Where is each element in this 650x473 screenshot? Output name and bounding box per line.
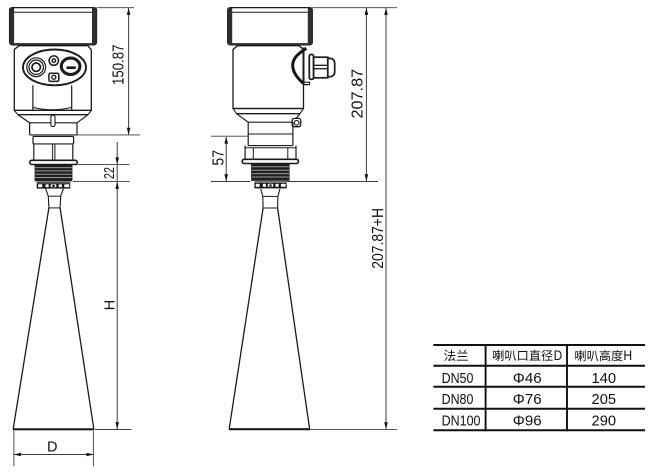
svg-text:207.87+H: 207.87+H (370, 208, 387, 269)
svg-text:150.87: 150.87 (111, 45, 128, 85)
svg-text:DN50: DN50 (442, 371, 474, 387)
svg-text:D: D (554, 348, 563, 364)
svg-text:290: 290 (592, 414, 617, 430)
svg-text:D: D (47, 439, 57, 455)
svg-text:Φ96: Φ96 (513, 414, 542, 430)
svg-text:H: H (103, 300, 119, 310)
svg-text:207.87: 207.87 (349, 69, 366, 119)
svg-text:DN100: DN100 (442, 414, 481, 430)
svg-text:22: 22 (102, 167, 118, 179)
svg-text:140: 140 (592, 371, 617, 387)
svg-text:57: 57 (211, 150, 228, 166)
svg-text:H: H (623, 348, 632, 364)
svg-text:Φ46: Φ46 (513, 371, 542, 387)
svg-text:DN80: DN80 (442, 392, 474, 408)
svg-text:Φ76: Φ76 (513, 392, 542, 408)
svg-text:205: 205 (592, 392, 617, 408)
